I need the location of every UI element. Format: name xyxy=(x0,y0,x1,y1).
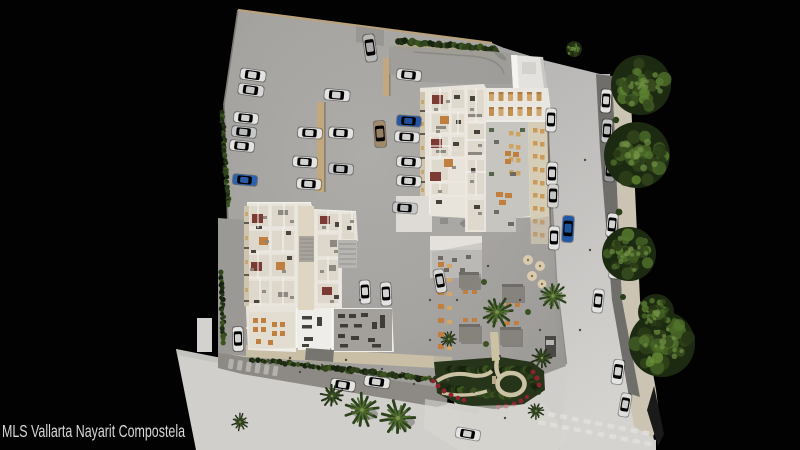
svg-text:MLS Vallarta Nayarit Compostel: MLS Vallarta Nayarit Compostela xyxy=(2,421,185,441)
